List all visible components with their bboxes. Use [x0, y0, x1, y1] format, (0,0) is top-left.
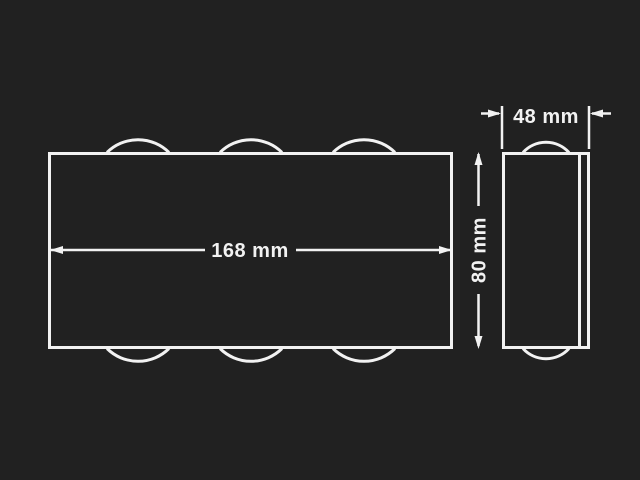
side-bottom-bump [523, 349, 569, 359]
front-bottom-bump-2 [220, 349, 282, 362]
front-top-bump-3 [333, 140, 395, 153]
side-view-outline [504, 154, 589, 348]
side-top-bump [523, 142, 569, 152]
dimension-diagram: 168 mm 80 mm 48 mm [0, 0, 640, 480]
arrow-down-icon [475, 336, 483, 349]
front-bottom-bump-1 [107, 349, 169, 362]
diagram-canvas: 168 mm 80 mm 48 mm [0, 0, 640, 480]
front-top-bump-2 [220, 140, 282, 153]
width-dimension: 168 mm [50, 240, 452, 262]
side-view [504, 142, 589, 358]
height-dimension: 80 mm [469, 152, 491, 349]
front-bottom-bump-3 [333, 349, 395, 362]
arrow-left-icon [50, 246, 63, 254]
arrow-left-icon [590, 110, 603, 118]
depth-dimension-label: 48 mm [513, 106, 579, 128]
width-dimension-label: 168 mm [211, 240, 289, 262]
front-top-bump-1 [107, 140, 169, 153]
height-dimension-label: 80 mm [469, 217, 491, 283]
arrow-up-icon [475, 152, 483, 165]
arrow-right-icon [488, 110, 501, 118]
